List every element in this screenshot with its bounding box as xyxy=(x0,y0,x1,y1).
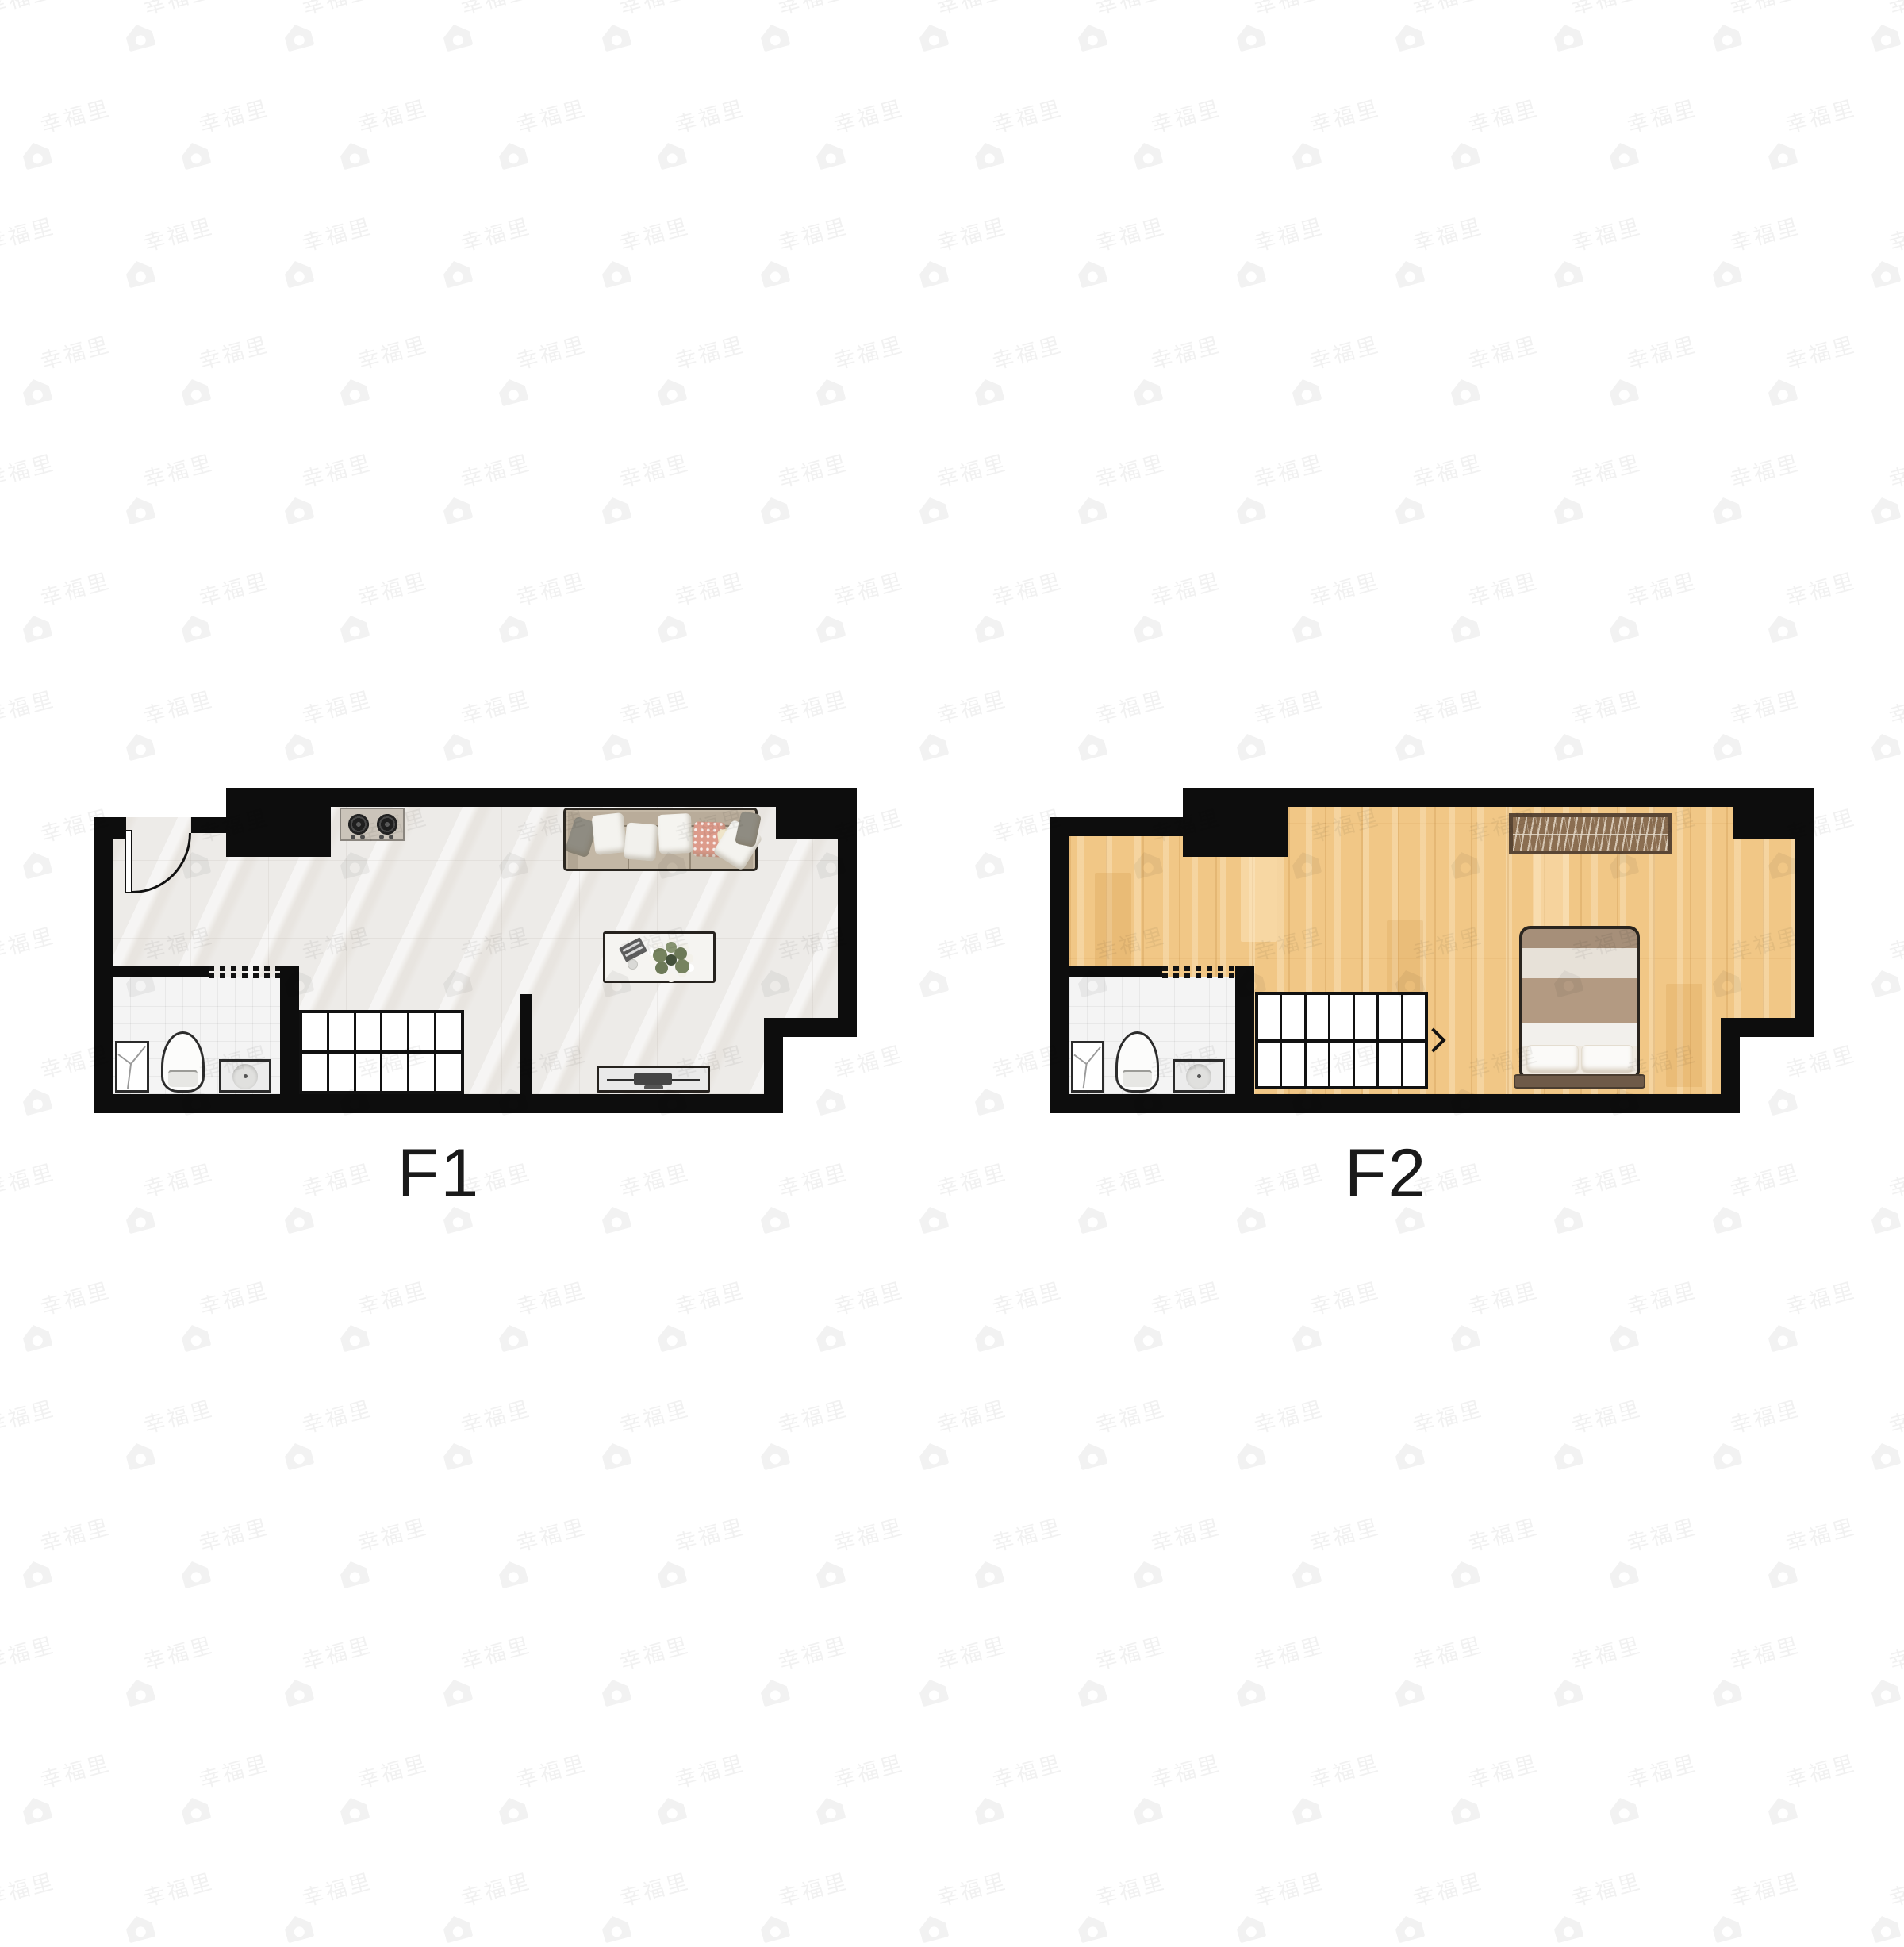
stair-tread xyxy=(1403,1041,1425,1087)
watermark: 幸福里 xyxy=(1226,682,1334,765)
watermark-text: 幸福里 xyxy=(140,1154,217,1203)
watermark: 幸福里 xyxy=(750,209,858,292)
watermark: 幸福里 xyxy=(0,919,64,1001)
watermark-text: 幸福里 xyxy=(298,209,375,257)
watermark-text: 幸福里 xyxy=(1885,918,1904,966)
stair-landing-line xyxy=(301,1050,463,1054)
watermark: 幸福里 xyxy=(591,0,699,56)
watermark-text: 幸福里 xyxy=(457,0,534,21)
house-icon xyxy=(1234,1204,1267,1235)
stair-tread xyxy=(356,1052,383,1091)
watermark-text: 幸福里 xyxy=(1782,1273,1859,1321)
watermark: 幸福里 xyxy=(805,91,913,174)
house-icon xyxy=(21,1085,53,1116)
watermark-text: 幸福里 xyxy=(298,1864,375,1912)
house-icon xyxy=(1449,140,1481,171)
house-icon xyxy=(1710,1676,1743,1707)
stair-tread xyxy=(302,1052,329,1091)
house-icon xyxy=(124,731,156,762)
watermark-text: 幸福里 xyxy=(457,682,534,730)
house-icon xyxy=(1449,1322,1481,1353)
watermark-text: 幸福里 xyxy=(0,1627,58,1676)
watermark: 幸福里 xyxy=(1067,1392,1175,1474)
watermark-text: 幸福里 xyxy=(1782,1745,1859,1794)
watermark: 幸福里 xyxy=(0,1155,64,1238)
house-icon xyxy=(655,140,688,171)
house-icon xyxy=(1076,21,1108,52)
watermark-text: 幸福里 xyxy=(1885,0,1904,21)
watermark-text: 幸福里 xyxy=(1568,682,1645,730)
stair-tread xyxy=(329,1052,356,1091)
watermark-text: 幸福里 xyxy=(140,1627,217,1676)
watermark: 幸福里 xyxy=(488,1746,596,1829)
watermark: 幸福里 xyxy=(1860,446,1904,528)
house-icon xyxy=(179,140,212,171)
watermark-text: 幸福里 xyxy=(988,1509,1065,1557)
house-icon xyxy=(973,1322,1005,1353)
watermark-text: 幸福里 xyxy=(0,1864,58,1912)
watermark: 幸福里 xyxy=(488,1273,596,1356)
house-icon xyxy=(1131,140,1164,171)
watermark-text: 幸福里 xyxy=(354,1509,431,1557)
watermark-text: 幸福里 xyxy=(1306,1273,1383,1321)
stair-tread xyxy=(1258,995,1282,1041)
house-icon xyxy=(282,1440,315,1471)
watermark-text: 幸福里 xyxy=(457,1864,534,1912)
house-icon xyxy=(600,1913,632,1944)
house-icon xyxy=(758,1676,791,1707)
watermark-text: 幸福里 xyxy=(1092,1391,1169,1439)
house-icon xyxy=(758,21,791,52)
coffee-table xyxy=(603,931,716,983)
watermark-text: 幸福里 xyxy=(1409,445,1486,493)
house-icon xyxy=(917,967,950,998)
watermark: 幸福里 xyxy=(274,1628,382,1711)
watermark-text: 幸福里 xyxy=(1092,1627,1169,1676)
watermark: 幸福里 xyxy=(1599,1746,1706,1829)
wood-plank-patch xyxy=(1666,984,1702,1087)
watermark: 幸福里 xyxy=(750,0,858,56)
basin-drain xyxy=(1197,1074,1201,1078)
house-icon xyxy=(1449,613,1481,643)
watermark-text: 幸福里 xyxy=(1464,563,1541,612)
watermark: 幸福里 xyxy=(1281,328,1389,410)
watermark: 幸福里 xyxy=(647,564,754,647)
watermark-text: 幸福里 xyxy=(1464,327,1541,375)
house-icon xyxy=(917,1676,950,1707)
watermark: 幸福里 xyxy=(1599,1273,1706,1356)
house-icon xyxy=(179,1795,212,1826)
watermark-text: 幸福里 xyxy=(1092,1154,1169,1203)
watermark: 幸福里 xyxy=(115,209,223,292)
watermark: 幸福里 xyxy=(329,328,437,410)
watermark: 幸福里 xyxy=(432,0,540,56)
house-icon xyxy=(497,613,529,643)
watermark: 幸福里 xyxy=(171,328,278,410)
watermark-text: 幸福里 xyxy=(616,0,693,21)
house-icon xyxy=(655,1322,688,1353)
watermark: 幸福里 xyxy=(750,446,858,528)
watermark: 幸福里 xyxy=(647,1746,754,1829)
house-icon xyxy=(124,494,156,525)
house-icon xyxy=(1552,1676,1584,1707)
watermark-text: 幸福里 xyxy=(933,445,1010,493)
watermark: 幸福里 xyxy=(0,682,64,765)
house-icon xyxy=(1552,1204,1584,1235)
house-icon xyxy=(973,376,1005,407)
watermark-text: 幸福里 xyxy=(933,1391,1010,1439)
house-icon xyxy=(655,1795,688,1826)
watermark: 幸福里 xyxy=(1440,564,1548,647)
watermark: 幸福里 xyxy=(0,446,64,528)
house-icon xyxy=(338,1558,370,1589)
watermark: 幸福里 xyxy=(1702,446,1810,528)
watermark: 幸福里 xyxy=(1226,0,1334,56)
watermark-text: 幸福里 xyxy=(1623,1509,1700,1557)
house-icon xyxy=(1449,376,1481,407)
watermark: 幸福里 xyxy=(1067,1628,1175,1711)
house-icon xyxy=(973,1795,1005,1826)
house-icon xyxy=(1076,494,1108,525)
watermark: 幸福里 xyxy=(1757,1746,1865,1829)
pillow xyxy=(658,813,693,854)
watermark-text: 幸福里 xyxy=(988,90,1065,139)
watermark: 幸福里 xyxy=(1599,328,1706,410)
watermark: 幸福里 xyxy=(750,1392,858,1474)
stair-tread xyxy=(1355,995,1379,1041)
watermark-text: 幸福里 xyxy=(774,682,851,730)
watermark-text: 幸福里 xyxy=(1306,327,1383,375)
stair-tread xyxy=(409,1052,436,1091)
blanket xyxy=(1522,978,1637,1023)
watermark: 幸福里 xyxy=(1702,1392,1810,1474)
watermark: 幸福里 xyxy=(1281,564,1389,647)
watermark-text: 幸福里 xyxy=(1623,1745,1700,1794)
house-icon xyxy=(1552,494,1584,525)
house-icon xyxy=(1766,613,1798,643)
watermark: 幸福里 xyxy=(647,328,754,410)
house-icon xyxy=(1290,140,1322,171)
watermark: 幸福里 xyxy=(805,1273,913,1356)
watermark-text: 幸福里 xyxy=(298,1627,375,1676)
watermark: 幸福里 xyxy=(908,919,1016,1001)
watermark: 幸福里 xyxy=(1543,1628,1651,1711)
house-icon xyxy=(1710,1204,1743,1235)
watermark-text: 幸福里 xyxy=(512,90,589,139)
watermark: 幸福里 xyxy=(0,0,64,56)
watermark-text: 幸福里 xyxy=(195,90,272,139)
watermark: 幸福里 xyxy=(750,1864,858,1947)
bed-sheet xyxy=(1522,1023,1637,1046)
watermark: 幸福里 xyxy=(274,0,382,56)
watermark-text: 幸福里 xyxy=(1726,1391,1803,1439)
watermark: 幸福里 xyxy=(1543,209,1651,292)
house-icon xyxy=(1869,967,1902,998)
watermark-text: 幸福里 xyxy=(1306,1509,1383,1557)
entry-door-leaf xyxy=(125,830,132,893)
house-icon xyxy=(282,1204,315,1235)
watermark: 幸福里 xyxy=(1067,1864,1175,1947)
house-icon xyxy=(1234,258,1267,289)
toilet-seat xyxy=(1123,1070,1152,1087)
watermark-text: 幸福里 xyxy=(36,563,113,612)
shower-fold-lines xyxy=(1073,1043,1102,1090)
stair-tread xyxy=(1379,995,1403,1041)
watermark: 幸福里 xyxy=(750,1628,858,1711)
watermark-text: 幸福里 xyxy=(671,327,748,375)
watermark-text: 幸福里 xyxy=(354,327,431,375)
house-icon xyxy=(1710,258,1743,289)
house-icon xyxy=(21,849,53,880)
watermark-text: 幸福里 xyxy=(0,209,58,257)
watermark: 幸福里 xyxy=(171,1746,278,1829)
toilet-seat xyxy=(168,1070,198,1087)
watermark: 幸福里 xyxy=(432,1864,540,1947)
watermark-text: 幸福里 xyxy=(1726,0,1803,21)
house-icon xyxy=(1393,21,1426,52)
floor-label-f2: F2 xyxy=(1307,1139,1465,1208)
watermark-text: 幸福里 xyxy=(1568,1627,1645,1676)
house-icon xyxy=(21,613,53,643)
house-icon xyxy=(600,494,632,525)
watermark: 幸福里 xyxy=(1440,1746,1548,1829)
house-icon xyxy=(441,21,474,52)
sliding-door-dashed xyxy=(1162,973,1235,978)
burner-icon xyxy=(347,812,370,836)
watermark: 幸福里 xyxy=(274,682,382,765)
watermark: 幸福里 xyxy=(1384,0,1492,56)
watermark: 幸福里 xyxy=(1226,1392,1334,1474)
watermark: 幸福里 xyxy=(1702,1155,1810,1238)
watermark-text: 幸福里 xyxy=(195,1509,272,1557)
house-icon xyxy=(1869,1440,1902,1471)
watermark-text: 幸福里 xyxy=(1250,1391,1327,1439)
watermark-text: 幸福里 xyxy=(140,1864,217,1912)
watermark: 幸福里 xyxy=(1123,1273,1230,1356)
house-icon xyxy=(973,613,1005,643)
watermark-text: 幸福里 xyxy=(988,1745,1065,1794)
house-icon xyxy=(973,849,1005,880)
house-icon xyxy=(1710,1913,1743,1944)
house-icon xyxy=(814,140,846,171)
tv-icon xyxy=(634,1073,672,1085)
house-icon xyxy=(1393,494,1426,525)
stair-tread xyxy=(382,1052,409,1091)
watermark-text: 幸福里 xyxy=(1885,1864,1904,1912)
house-icon xyxy=(179,613,212,643)
watermark-text: 幸福里 xyxy=(774,445,851,493)
house-icon xyxy=(1076,731,1108,762)
watermark: 幸福里 xyxy=(1281,1746,1389,1829)
stair-tread xyxy=(302,1013,329,1052)
watermark: 幸福里 xyxy=(1123,328,1230,410)
watermark: 幸福里 xyxy=(1860,1628,1904,1711)
watermark: 幸福里 xyxy=(1123,1746,1230,1829)
watermark-text: 幸福里 xyxy=(1726,682,1803,730)
watermark: 幸福里 xyxy=(908,446,1016,528)
watermark: 幸福里 xyxy=(274,446,382,528)
wall-segment xyxy=(94,817,113,1113)
watermark-text: 幸福里 xyxy=(830,563,907,612)
watermark: 幸福里 xyxy=(329,1273,437,1356)
watermark: 幸福里 xyxy=(1599,564,1706,647)
watermark: 幸福里 xyxy=(1757,564,1865,647)
watermark: 幸福里 xyxy=(0,209,64,292)
house-icon xyxy=(1076,1676,1108,1707)
watermark-text: 幸福里 xyxy=(195,327,272,375)
stair-tread xyxy=(382,1013,409,1052)
watermark-text: 幸福里 xyxy=(1726,445,1803,493)
bed-footboard xyxy=(1514,1074,1645,1089)
watermark: 幸福里 xyxy=(1226,1628,1334,1711)
double-bed xyxy=(1519,926,1640,1079)
watermark-text: 幸福里 xyxy=(0,1391,58,1439)
watermark: 幸福里 xyxy=(1860,919,1904,1001)
stair-tread xyxy=(1258,1041,1282,1087)
watermark-text: 幸福里 xyxy=(1306,563,1383,612)
watermark-text: 幸福里 xyxy=(354,1273,431,1321)
house-icon xyxy=(1234,1440,1267,1471)
watermark-text: 幸福里 xyxy=(1623,327,1700,375)
watermark-text: 幸福里 xyxy=(988,563,1065,612)
watermark: 幸福里 xyxy=(1599,91,1706,174)
house-icon xyxy=(917,1913,950,1944)
watermark-text: 幸福里 xyxy=(0,1154,58,1203)
watermark: 幸福里 xyxy=(115,1155,223,1238)
watermark-text: 幸福里 xyxy=(1250,209,1327,257)
stair-tread xyxy=(329,1013,356,1052)
stair-tread xyxy=(409,1013,436,1052)
watermark: 幸福里 xyxy=(1543,1864,1651,1947)
watermark: 幸福里 xyxy=(432,209,540,292)
wall-segment xyxy=(94,1094,783,1113)
watermark-text: 幸福里 xyxy=(0,682,58,730)
house-icon xyxy=(21,1322,53,1353)
watermark: 幸福里 xyxy=(1067,0,1175,56)
house-icon xyxy=(1869,1204,1902,1235)
watermark: 幸福里 xyxy=(591,446,699,528)
house-icon xyxy=(814,1795,846,1826)
watermark-text: 幸福里 xyxy=(933,209,1010,257)
watermark: 幸福里 xyxy=(1384,682,1492,765)
watermark-text: 幸福里 xyxy=(774,1627,851,1676)
house-icon xyxy=(814,613,846,643)
watermark: 幸福里 xyxy=(750,682,858,765)
watermark-text: 幸福里 xyxy=(36,1745,113,1794)
house-icon xyxy=(338,1322,370,1353)
exterior-mask xyxy=(783,1037,838,1094)
house-icon xyxy=(497,140,529,171)
watermark-text: 幸福里 xyxy=(1568,209,1645,257)
watermark: 幸福里 xyxy=(12,1510,120,1592)
house-icon xyxy=(1552,258,1584,289)
watermark-text: 幸福里 xyxy=(457,1391,534,1439)
watermark: 幸福里 xyxy=(908,0,1016,56)
watermark-text: 幸福里 xyxy=(1623,563,1700,612)
stair-tread xyxy=(436,1013,461,1052)
watermark: 幸福里 xyxy=(12,1746,120,1829)
watermark: 幸福里 xyxy=(432,446,540,528)
house-icon xyxy=(758,494,791,525)
house-icon xyxy=(1234,1676,1267,1707)
watermark-text: 幸福里 xyxy=(1782,563,1859,612)
watermark-text: 幸福里 xyxy=(933,0,1010,21)
watermark: 幸福里 xyxy=(115,1392,223,1474)
watermark: 幸福里 xyxy=(1281,1510,1389,1592)
watermark: 幸福里 xyxy=(1860,0,1904,56)
staircase-f1 xyxy=(299,1010,464,1094)
house-icon xyxy=(1869,21,1902,52)
watermark: 幸福里 xyxy=(908,1628,1016,1711)
watermark-text: 幸福里 xyxy=(1306,90,1383,139)
house-icon xyxy=(1290,1558,1322,1589)
bathroom-wall xyxy=(1069,966,1162,977)
watermark-text: 幸福里 xyxy=(457,1627,534,1676)
watermark: 幸福里 xyxy=(329,564,437,647)
watermark: 幸福里 xyxy=(1702,209,1810,292)
watermark: 幸福里 xyxy=(115,1628,223,1711)
wall-segment xyxy=(838,788,857,1037)
burner-icon xyxy=(375,812,399,836)
wall-column xyxy=(226,788,331,857)
watermark-text: 幸福里 xyxy=(1464,1745,1541,1794)
house-icon xyxy=(1710,494,1743,525)
house-icon xyxy=(1869,1676,1902,1707)
partition-wall xyxy=(520,994,532,1094)
house-icon xyxy=(282,1913,315,1944)
watermark: 幸福里 xyxy=(115,1864,223,1947)
watermark-text: 幸福里 xyxy=(1782,1509,1859,1557)
house-icon xyxy=(600,1440,632,1471)
watermark-text: 幸福里 xyxy=(1726,1154,1803,1203)
house-icon xyxy=(338,376,370,407)
stair-tread xyxy=(1330,995,1354,1041)
watermark: 幸福里 xyxy=(274,1864,382,1947)
watermark-text: 幸福里 xyxy=(457,445,534,493)
watermark-text: 幸福里 xyxy=(140,1391,217,1439)
house-icon xyxy=(1766,140,1798,171)
watermark: 幸福里 xyxy=(591,1155,699,1238)
house-icon xyxy=(282,494,315,525)
house-icon xyxy=(338,140,370,171)
house-icon xyxy=(1552,21,1584,52)
watermark: 幸福里 xyxy=(1702,1628,1810,1711)
watermark-text: 幸福里 xyxy=(36,327,113,375)
watermark: 幸福里 xyxy=(908,1392,1016,1474)
watermark: 幸福里 xyxy=(432,1628,540,1711)
watermark: 幸福里 xyxy=(432,1392,540,1474)
watermark: 幸福里 xyxy=(1384,209,1492,292)
watermark: 幸福里 xyxy=(1226,446,1334,528)
watermark: 幸福里 xyxy=(1281,1273,1389,1356)
house-icon xyxy=(600,21,632,52)
wardrobe xyxy=(1509,813,1672,854)
watermark-text: 幸福里 xyxy=(830,1745,907,1794)
watermark: 幸福里 xyxy=(1440,1510,1548,1592)
watermark: 幸福里 xyxy=(171,1273,278,1356)
watermark: 幸福里 xyxy=(805,1746,913,1829)
watermark: 幸福里 xyxy=(1281,91,1389,174)
house-icon xyxy=(917,1204,950,1235)
house-icon xyxy=(917,494,950,525)
house-icon xyxy=(1234,1913,1267,1944)
watermark-text: 幸福里 xyxy=(1250,682,1327,730)
house-icon xyxy=(600,1676,632,1707)
house-icon xyxy=(655,1558,688,1589)
wash-basin xyxy=(219,1059,271,1093)
watermark: 幸福里 xyxy=(274,1392,382,1474)
watermark: 幸福里 xyxy=(488,328,596,410)
